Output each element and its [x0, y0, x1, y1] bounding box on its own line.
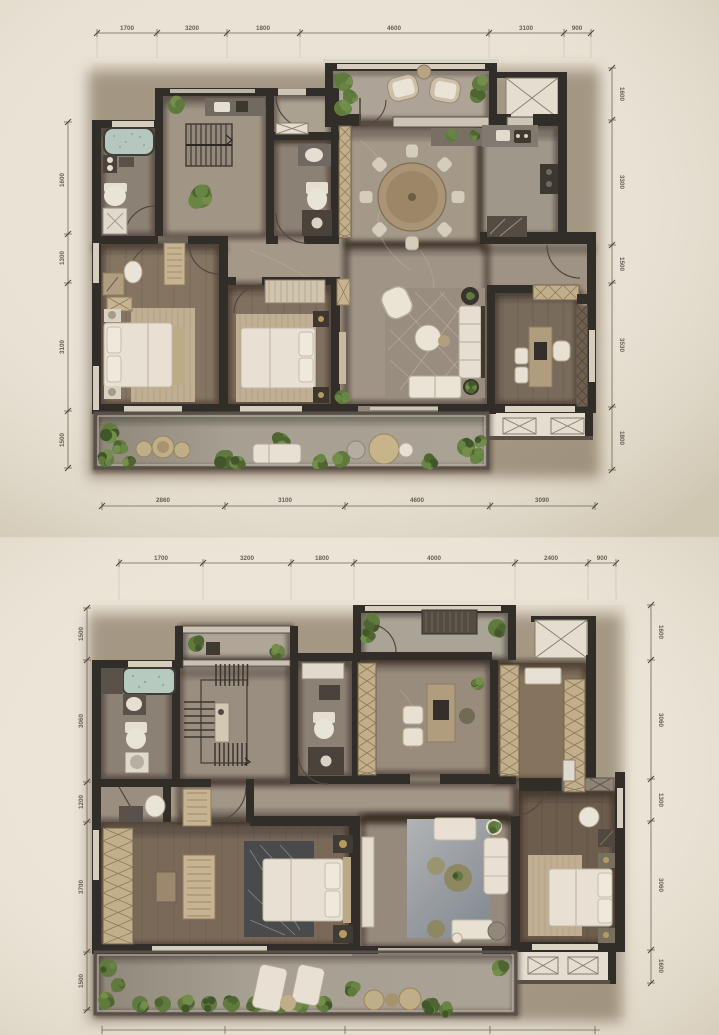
svg-text:1300: 1300 [59, 251, 66, 266]
svg-text:3300: 3300 [618, 175, 625, 190]
svg-text:3100: 3100 [59, 340, 66, 355]
svg-text:1500: 1500 [59, 433, 66, 448]
svg-text:1800: 1800 [315, 555, 330, 562]
svg-text:3200: 3200 [185, 25, 200, 32]
svg-text:1800: 1800 [256, 25, 271, 32]
svg-text:2860: 2860 [156, 497, 171, 504]
svg-text:4600: 4600 [410, 497, 425, 504]
svg-text:900: 900 [572, 25, 583, 32]
svg-text:3100: 3100 [278, 497, 293, 504]
svg-text:1700: 1700 [120, 25, 135, 32]
svg-text:3060: 3060 [78, 714, 85, 729]
svg-text:1800: 1800 [618, 431, 625, 446]
svg-text:1600: 1600 [657, 625, 664, 640]
svg-text:1200: 1200 [78, 795, 85, 810]
svg-text:3090: 3090 [535, 497, 550, 504]
svg-text:3200: 3200 [240, 555, 255, 562]
svg-text:1500: 1500 [78, 974, 85, 989]
svg-text:1700: 1700 [154, 555, 169, 562]
svg-text:1500: 1500 [78, 627, 85, 642]
svg-text:4600: 4600 [387, 25, 402, 32]
svg-text:1600: 1600 [657, 959, 664, 974]
svg-text:900: 900 [597, 555, 608, 562]
svg-text:2400: 2400 [544, 555, 559, 562]
svg-text:3060: 3060 [657, 713, 664, 728]
svg-text:3100: 3100 [519, 25, 534, 32]
svg-text:3060: 3060 [657, 878, 664, 893]
svg-text:3700: 3700 [78, 880, 85, 895]
svg-text:1600: 1600 [59, 173, 66, 188]
svg-text:1300: 1300 [657, 793, 664, 808]
svg-text:3530: 3530 [618, 338, 625, 353]
svg-text:4000: 4000 [427, 555, 442, 562]
svg-text:1500: 1500 [618, 257, 625, 272]
svg-text:1600: 1600 [618, 87, 625, 102]
